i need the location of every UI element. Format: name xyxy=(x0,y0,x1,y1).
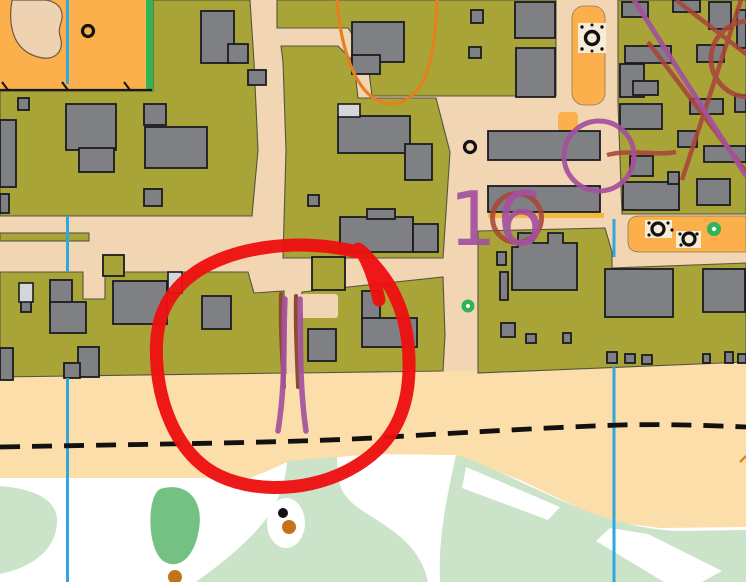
building xyxy=(202,296,231,329)
building xyxy=(228,44,248,63)
building xyxy=(413,224,438,252)
outlined-plot xyxy=(103,255,124,276)
building xyxy=(633,81,658,95)
building xyxy=(0,348,13,380)
building xyxy=(248,70,266,85)
tree-center xyxy=(466,304,470,308)
building xyxy=(308,329,336,361)
building xyxy=(516,48,555,97)
orienteering-map-viewport: 16 xyxy=(0,0,746,582)
building xyxy=(78,347,99,377)
driveway xyxy=(300,294,338,318)
building xyxy=(469,47,481,58)
building xyxy=(0,120,16,187)
building xyxy=(64,363,80,378)
building xyxy=(367,209,395,219)
building xyxy=(697,179,730,205)
building xyxy=(144,104,166,125)
building xyxy=(500,272,508,300)
building xyxy=(50,302,86,333)
building xyxy=(308,195,319,206)
tree-center xyxy=(712,227,716,231)
orienteering-map: 16 xyxy=(0,0,746,582)
knoll-dot xyxy=(282,520,296,534)
building xyxy=(563,333,571,343)
shed xyxy=(607,352,617,363)
building xyxy=(703,269,745,312)
control-number-label: 16 xyxy=(449,175,544,263)
building xyxy=(79,148,114,172)
shed xyxy=(738,354,746,363)
canopy xyxy=(338,104,360,117)
building xyxy=(145,127,207,168)
building xyxy=(338,116,410,153)
building xyxy=(737,10,746,48)
building xyxy=(623,182,679,210)
canopy xyxy=(19,283,33,302)
building xyxy=(668,172,679,184)
green-boundary-strip xyxy=(146,0,153,91)
building xyxy=(605,269,673,317)
shed xyxy=(625,354,635,363)
shed xyxy=(703,354,710,363)
building xyxy=(18,98,29,110)
shed xyxy=(725,352,733,363)
building xyxy=(144,189,162,206)
olive-sliver xyxy=(0,233,89,241)
building xyxy=(704,146,746,162)
building xyxy=(526,334,536,343)
boulder-dot xyxy=(278,508,288,518)
building xyxy=(515,2,555,38)
building xyxy=(620,104,662,129)
other-leg-line xyxy=(607,152,676,155)
shed xyxy=(642,355,652,364)
building xyxy=(352,55,380,74)
building xyxy=(405,144,432,180)
building xyxy=(0,194,9,213)
building xyxy=(66,104,116,150)
building xyxy=(471,10,483,23)
outlined-plot xyxy=(312,257,345,290)
building xyxy=(501,323,515,337)
building-row xyxy=(488,131,600,160)
orange-strip-vertical xyxy=(572,6,605,105)
